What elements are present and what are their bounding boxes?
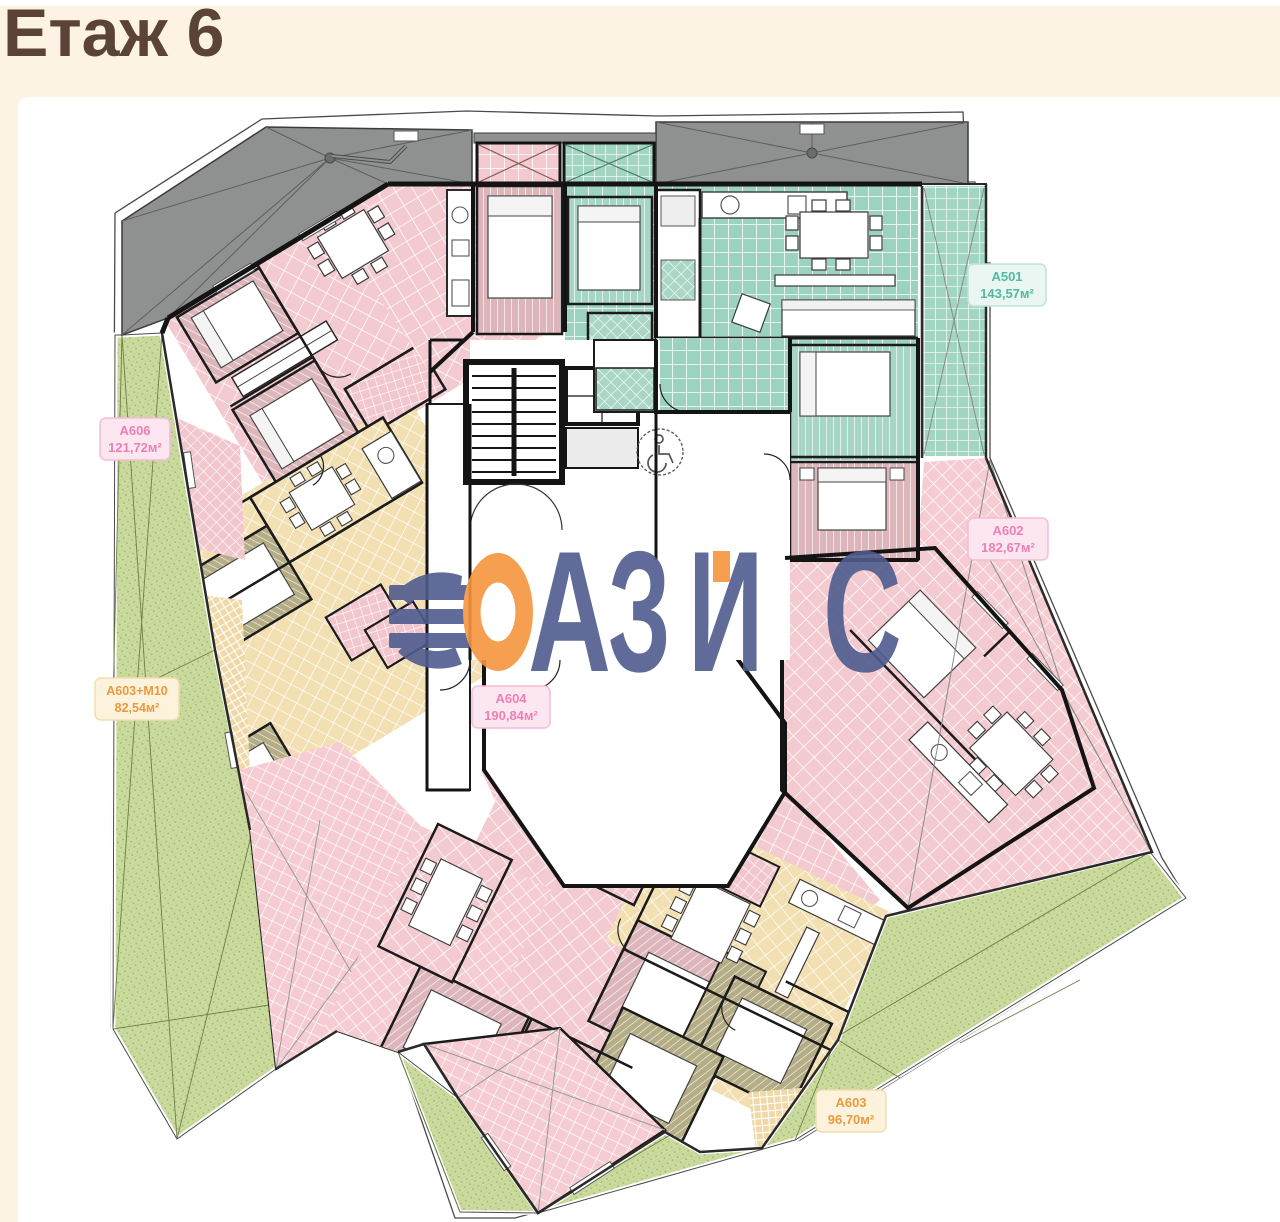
svg-text:A603+М10: A603+М10 (106, 684, 168, 698)
svg-text:A604: A604 (495, 691, 527, 706)
svg-text:82,54м²: 82,54м² (115, 701, 160, 715)
svg-text:С: С (823, 516, 902, 708)
svg-text:96,70м²: 96,70м² (828, 1112, 875, 1127)
svg-text:182,67м²: 182,67м² (981, 540, 1035, 555)
svg-text:A603: A603 (835, 1095, 866, 1110)
svg-text:A602: A602 (992, 523, 1023, 538)
svg-text:А: А (528, 516, 611, 709)
svg-text:З: З (608, 515, 671, 708)
svg-text:121,72м²: 121,72м² (108, 440, 162, 455)
svg-text:A501: A501 (991, 269, 1022, 284)
svg-text:Етаж 6: Етаж 6 (3, 0, 224, 71)
svg-text:A606: A606 (119, 423, 150, 438)
svg-text:И: И (688, 517, 764, 709)
svg-text:190,84м²: 190,84м² (484, 708, 538, 723)
svg-text:143,57м²: 143,57м² (980, 286, 1034, 301)
